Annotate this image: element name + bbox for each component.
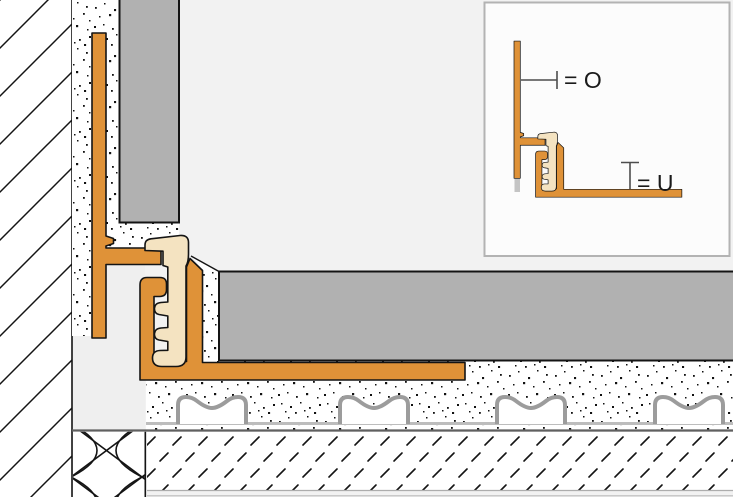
masonry-wall-hatch (0, 0, 72, 497)
inset-profile-shadow (515, 177, 521, 192)
technical-drawing-canvas: = O = U (0, 0, 733, 497)
inset-box (485, 3, 730, 257)
wall-tile (120, 0, 180, 223)
floor-tile (219, 272, 733, 361)
edge-insulation-strip (73, 432, 145, 497)
detail-inset-panel: = O = U (485, 3, 730, 257)
screed-layer (147, 432, 733, 496)
dimension-o-label: = O (564, 67, 602, 93)
dimension-u-label: = U (637, 170, 673, 196)
cross-section-diagram: = O = U (0, 0, 733, 497)
